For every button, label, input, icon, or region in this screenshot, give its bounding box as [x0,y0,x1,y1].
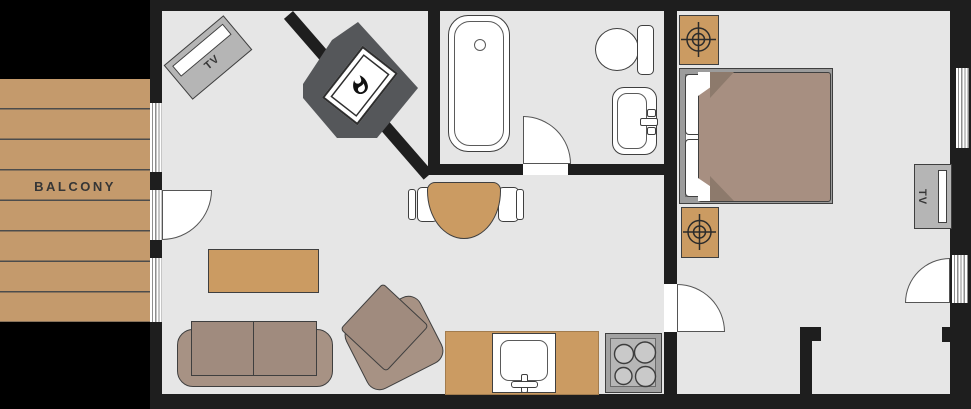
flame-icon [347,72,373,98]
bedroom-window [956,68,969,148]
stove [605,333,662,393]
stove-panel [610,338,656,387]
nightstand-bottom [681,207,719,258]
wall-bottom [150,394,971,409]
bathroom-faucet-handle-top [647,109,656,117]
dining-chair-left-backrest [408,189,416,220]
living-window-upper [150,103,162,172]
bathtub [448,15,510,152]
wall-bathroom-bottom-right [568,164,664,175]
lamp-icon [680,16,717,63]
coffee-table [208,249,319,293]
wall-left-segment [150,172,162,190]
wall-left-segment [150,240,162,258]
balcony-door-glazing [150,190,162,240]
bedroom-tv-screen [938,170,947,223]
toilet-bowl [595,28,639,71]
burner [636,367,656,387]
bathroom-door-gap [523,164,568,175]
wall-bedroom-divider-upper [664,11,677,284]
bedroom-tv-stand: TV [914,164,952,229]
wall-bathroom-left [428,11,440,175]
stove-burners [611,339,657,388]
wall-top [150,0,971,11]
wall-bathroom-bottom-left [428,164,523,175]
dining-chair-right-backrest [516,189,524,220]
bathtub-inner [454,21,504,146]
floor-plan: BALCONY TV [0,0,971,409]
closet-stub-left [800,327,812,394]
wall-left-segment [150,0,162,103]
bedroom-tv-label: TV [916,189,928,205]
bathroom-faucet [640,118,658,126]
burner [615,345,634,364]
wall-right [950,0,971,409]
toilet-tank [637,25,654,75]
bathtub-drain [474,39,486,51]
wall-left-segment [150,322,162,409]
bed-blanket [698,72,831,202]
kitchen-faucet-handle [511,381,538,388]
bedroom-exterior-door-glazing [952,255,968,303]
sofa-cushion-right [253,321,317,376]
burner [615,368,632,385]
balcony: BALCONY [0,79,150,322]
closet-stub-right [942,327,954,342]
bathroom-faucet-handle-bottom [647,127,656,135]
burner [635,342,656,363]
living-window-lower [150,258,162,322]
wall-bedroom-divider-lower [664,332,677,394]
sofa-cushion-left [191,321,254,376]
lamp-icon [682,208,717,256]
nightstand-top [679,15,719,65]
balcony-label: BALCONY [0,179,150,194]
bedroom-door-gap [664,284,677,332]
